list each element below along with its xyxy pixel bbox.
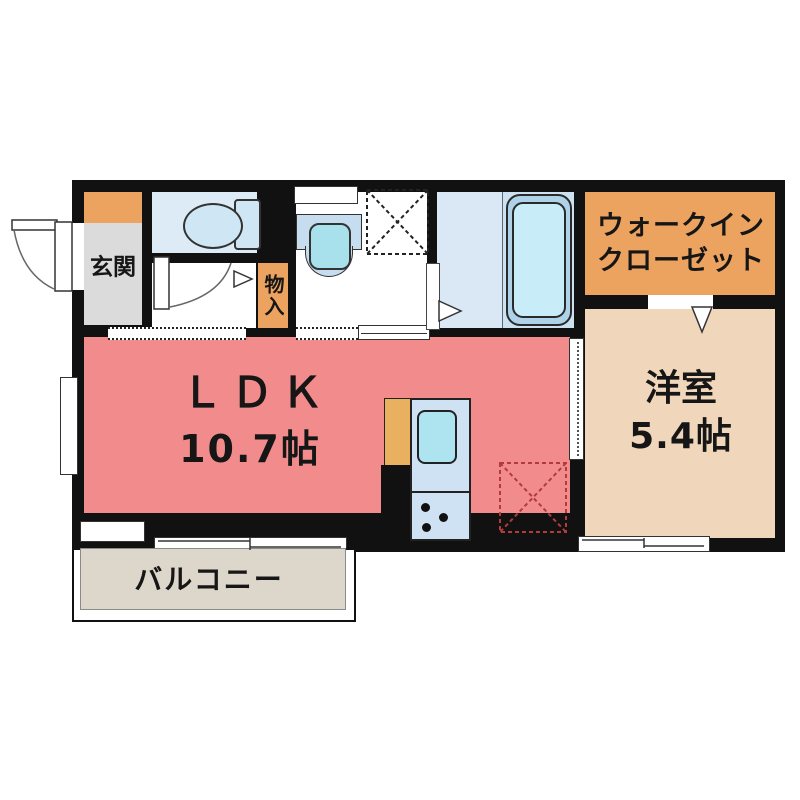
kitchen-cabinet bbox=[384, 398, 412, 469]
sliding-door-ldk-western-room bbox=[569, 338, 584, 460]
walk-in-closet-label-line2: クローゼット bbox=[597, 248, 765, 275]
kitchen-counter-divider bbox=[410, 491, 469, 493]
wash-basin-bowl bbox=[309, 223, 351, 270]
stove-burner bbox=[421, 503, 430, 512]
walk-in-closet-label-line1: ウォークイン bbox=[597, 213, 765, 240]
western-room-size-label: 5.4帖 bbox=[629, 419, 733, 455]
bathtub-inner bbox=[512, 202, 566, 318]
western-room-window bbox=[578, 536, 710, 552]
western-room-label: 洋室 bbox=[645, 371, 717, 407]
bathroom-door bbox=[426, 263, 440, 330]
toilet-bowl bbox=[183, 203, 243, 249]
hallway-floor bbox=[152, 263, 256, 328]
threshold-genkan-ldk bbox=[108, 327, 246, 340]
ldk-floor bbox=[84, 337, 570, 513]
ldk-label: ＬＤＫ bbox=[181, 372, 331, 414]
walk-in-closet-floor bbox=[585, 192, 775, 295]
sliding-door-washroom bbox=[358, 325, 430, 340]
threshold-washroom-ldk bbox=[296, 327, 358, 340]
storage-label: 物入 bbox=[263, 274, 283, 318]
ldk-bottom-window bbox=[80, 521, 145, 542]
washroom-window bbox=[294, 186, 358, 204]
genkan-label: 玄関 bbox=[90, 257, 136, 280]
sliding-door-track bbox=[577, 342, 579, 456]
stove-burner bbox=[422, 523, 431, 532]
sliding-door-line bbox=[361, 333, 427, 334]
floor-plan: 玄関 物入 ウォークイン クローゼット ＬＤＫ 10.7帖 洋室 5.4帖 バル… bbox=[0, 0, 800, 800]
ldk-size-label: 10.7帖 bbox=[179, 430, 321, 468]
stove-burner bbox=[439, 513, 448, 522]
ldk-left-window bbox=[60, 377, 78, 475]
entrance-door bbox=[12, 220, 72, 291]
kitchen-sink bbox=[417, 410, 457, 464]
shoe-cabinet bbox=[84, 192, 142, 223]
balcony-label: バルコニー bbox=[134, 566, 283, 594]
entrance-door-opening bbox=[72, 223, 84, 290]
